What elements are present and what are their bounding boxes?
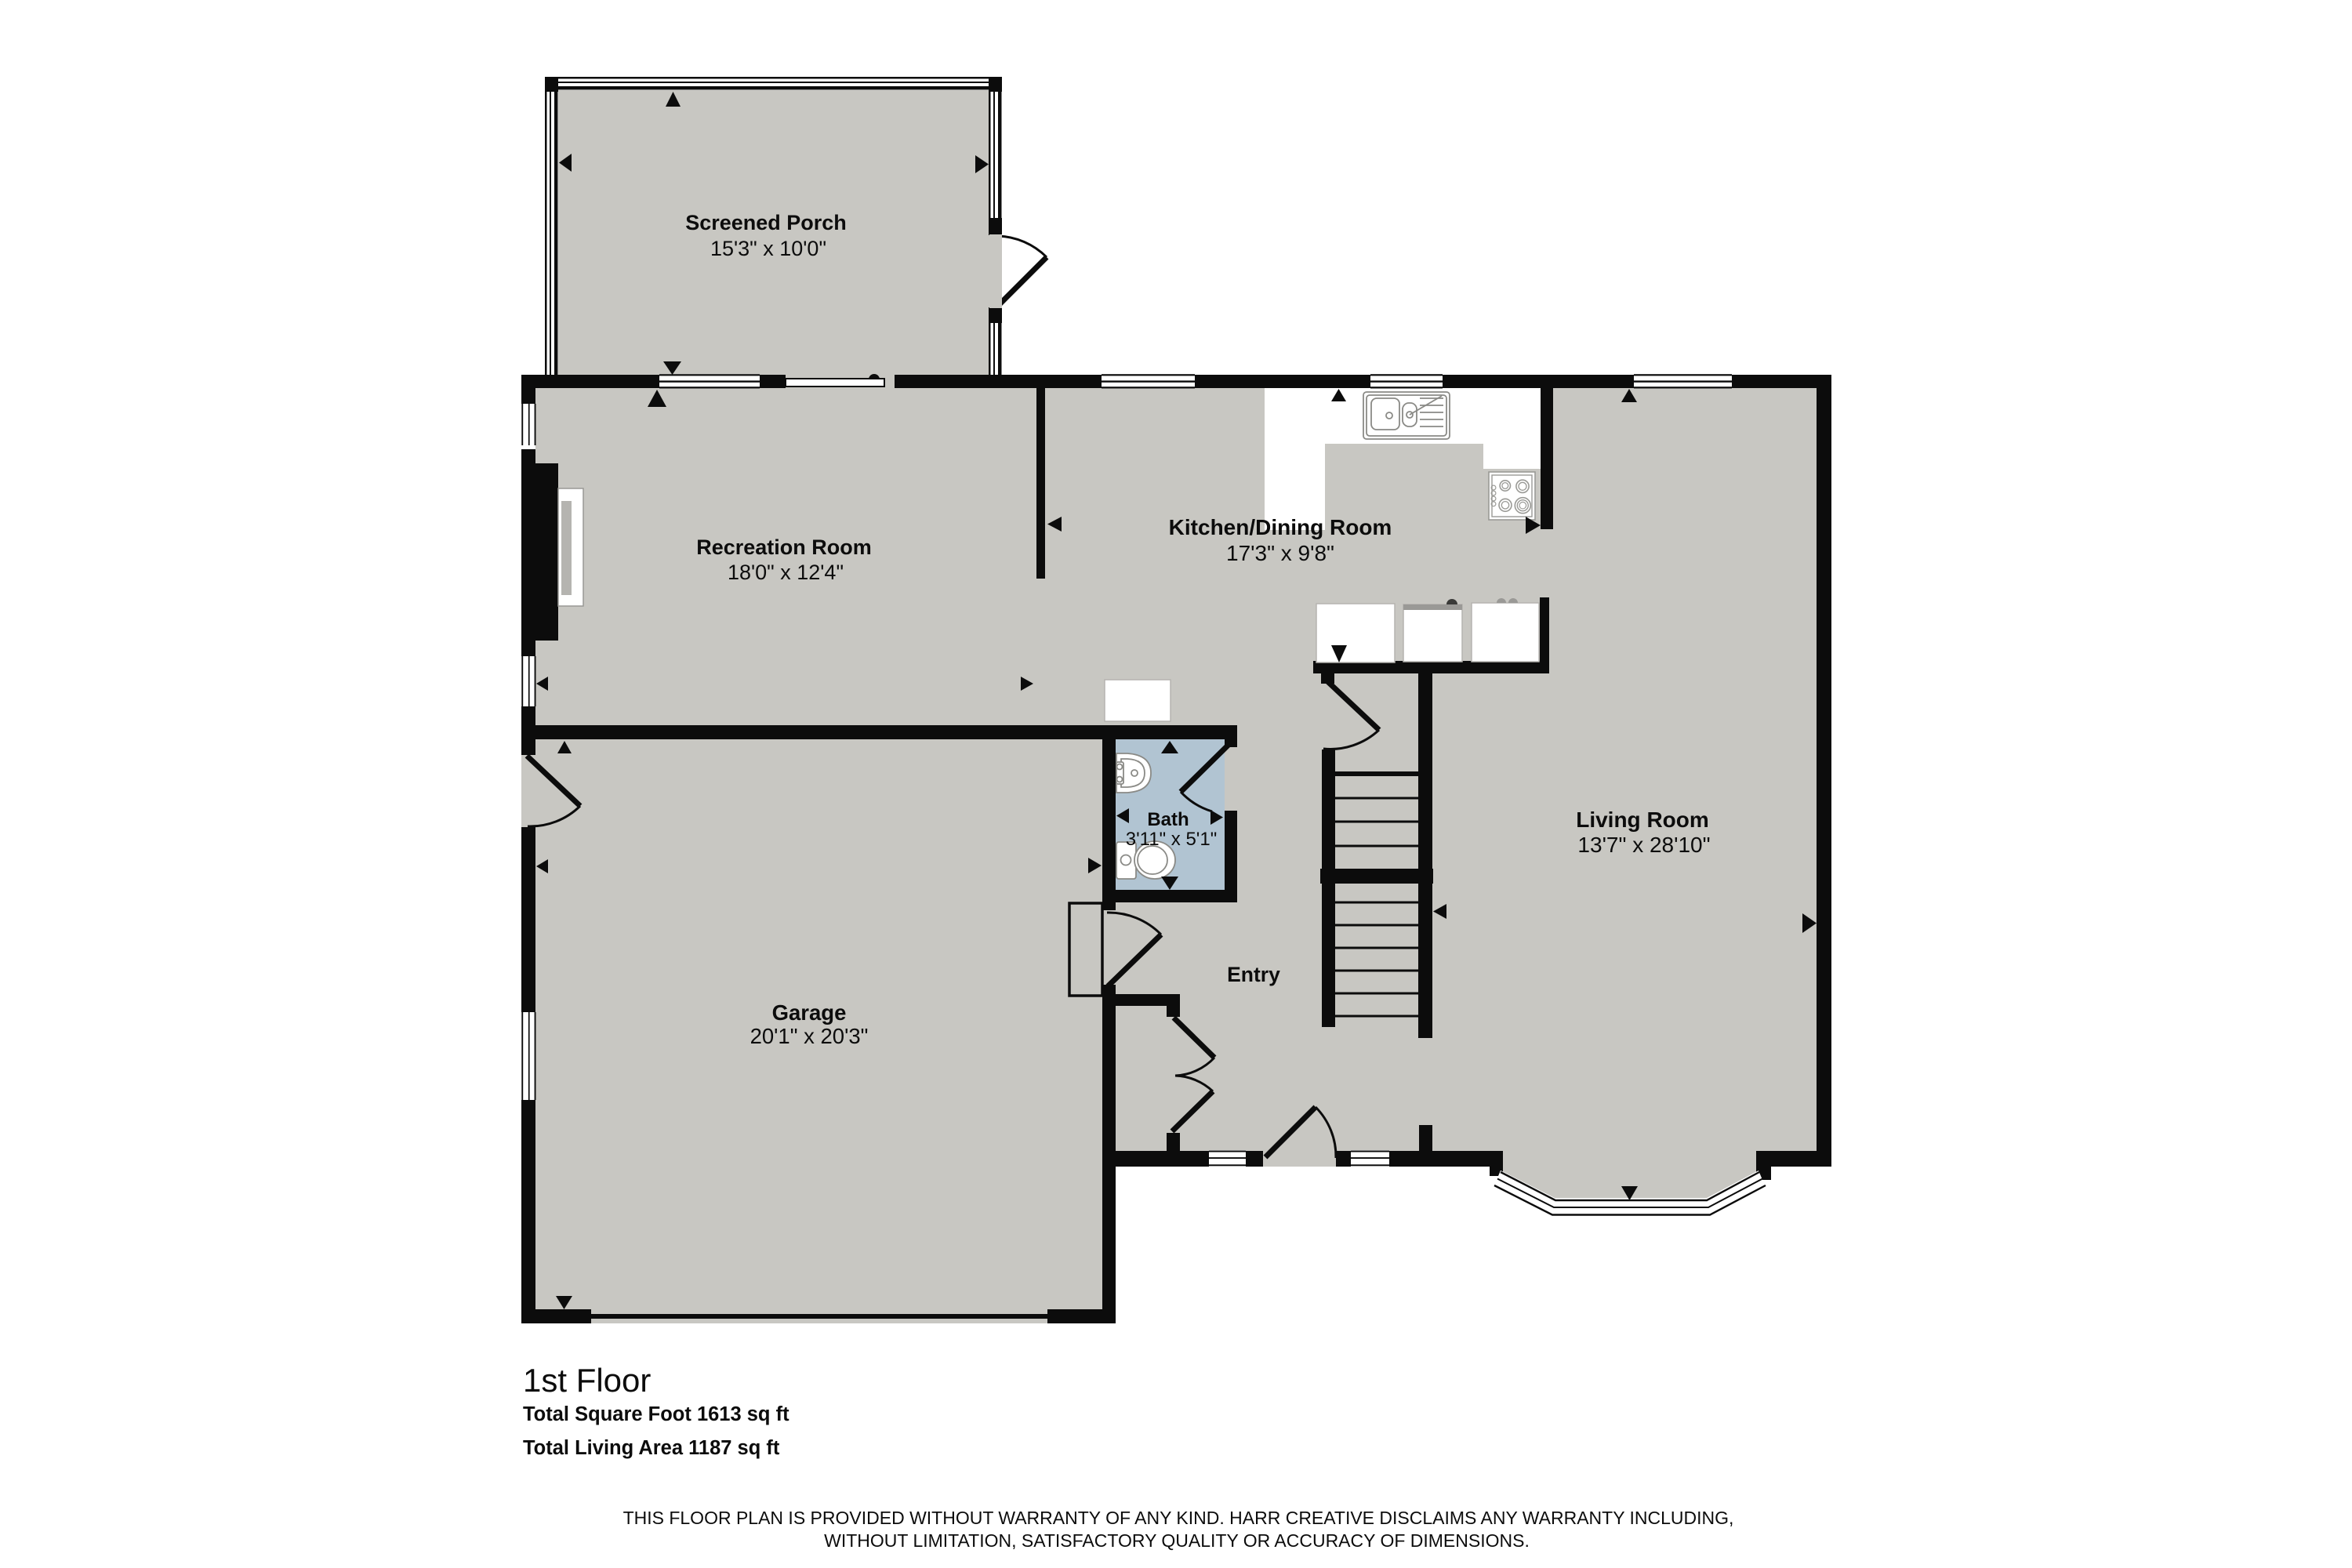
- svg-text:3'11" x 5'1": 3'11" x 5'1": [1126, 829, 1218, 850]
- svg-text:THIS FLOOR PLAN IS PROVIDED WI: THIS FLOOR PLAN IS PROVIDED WITHOUT WARR…: [623, 1508, 1734, 1528]
- svg-text:20'1" x 20'3": 20'1" x 20'3": [750, 1024, 869, 1048]
- svg-text:WITHOUT LIMITATION, SATISFACTO: WITHOUT LIMITATION, SATISFACTORY QUALITY…: [824, 1530, 1530, 1551]
- svg-text:Total Living Area 1187 sq ft: Total Living Area 1187 sq ft: [523, 1437, 780, 1459]
- svg-text:13'7" x 28'10": 13'7" x 28'10": [1577, 833, 1710, 857]
- svg-text:Recreation Room: Recreation Room: [696, 535, 872, 559]
- svg-text:18'0" x 12'4": 18'0" x 12'4": [728, 561, 844, 584]
- svg-text:Entry: Entry: [1227, 963, 1280, 986]
- svg-text:Garage: Garage: [772, 1000, 847, 1025]
- svg-text:Total Square Foot 1613 sq ft: Total Square Foot 1613 sq ft: [523, 1403, 789, 1425]
- svg-text:Kitchen/Dining Room: Kitchen/Dining Room: [1169, 515, 1392, 539]
- svg-text:Screened Porch: Screened Porch: [685, 211, 847, 234]
- svg-text:Living Room: Living Room: [1576, 808, 1709, 832]
- svg-text:Bath: Bath: [1147, 809, 1189, 830]
- svg-text:17'3" x 9'8": 17'3" x 9'8": [1226, 541, 1334, 565]
- svg-text:15'3" x 10'0": 15'3" x 10'0": [710, 237, 826, 260]
- svg-text:1st Floor: 1st Floor: [523, 1362, 651, 1399]
